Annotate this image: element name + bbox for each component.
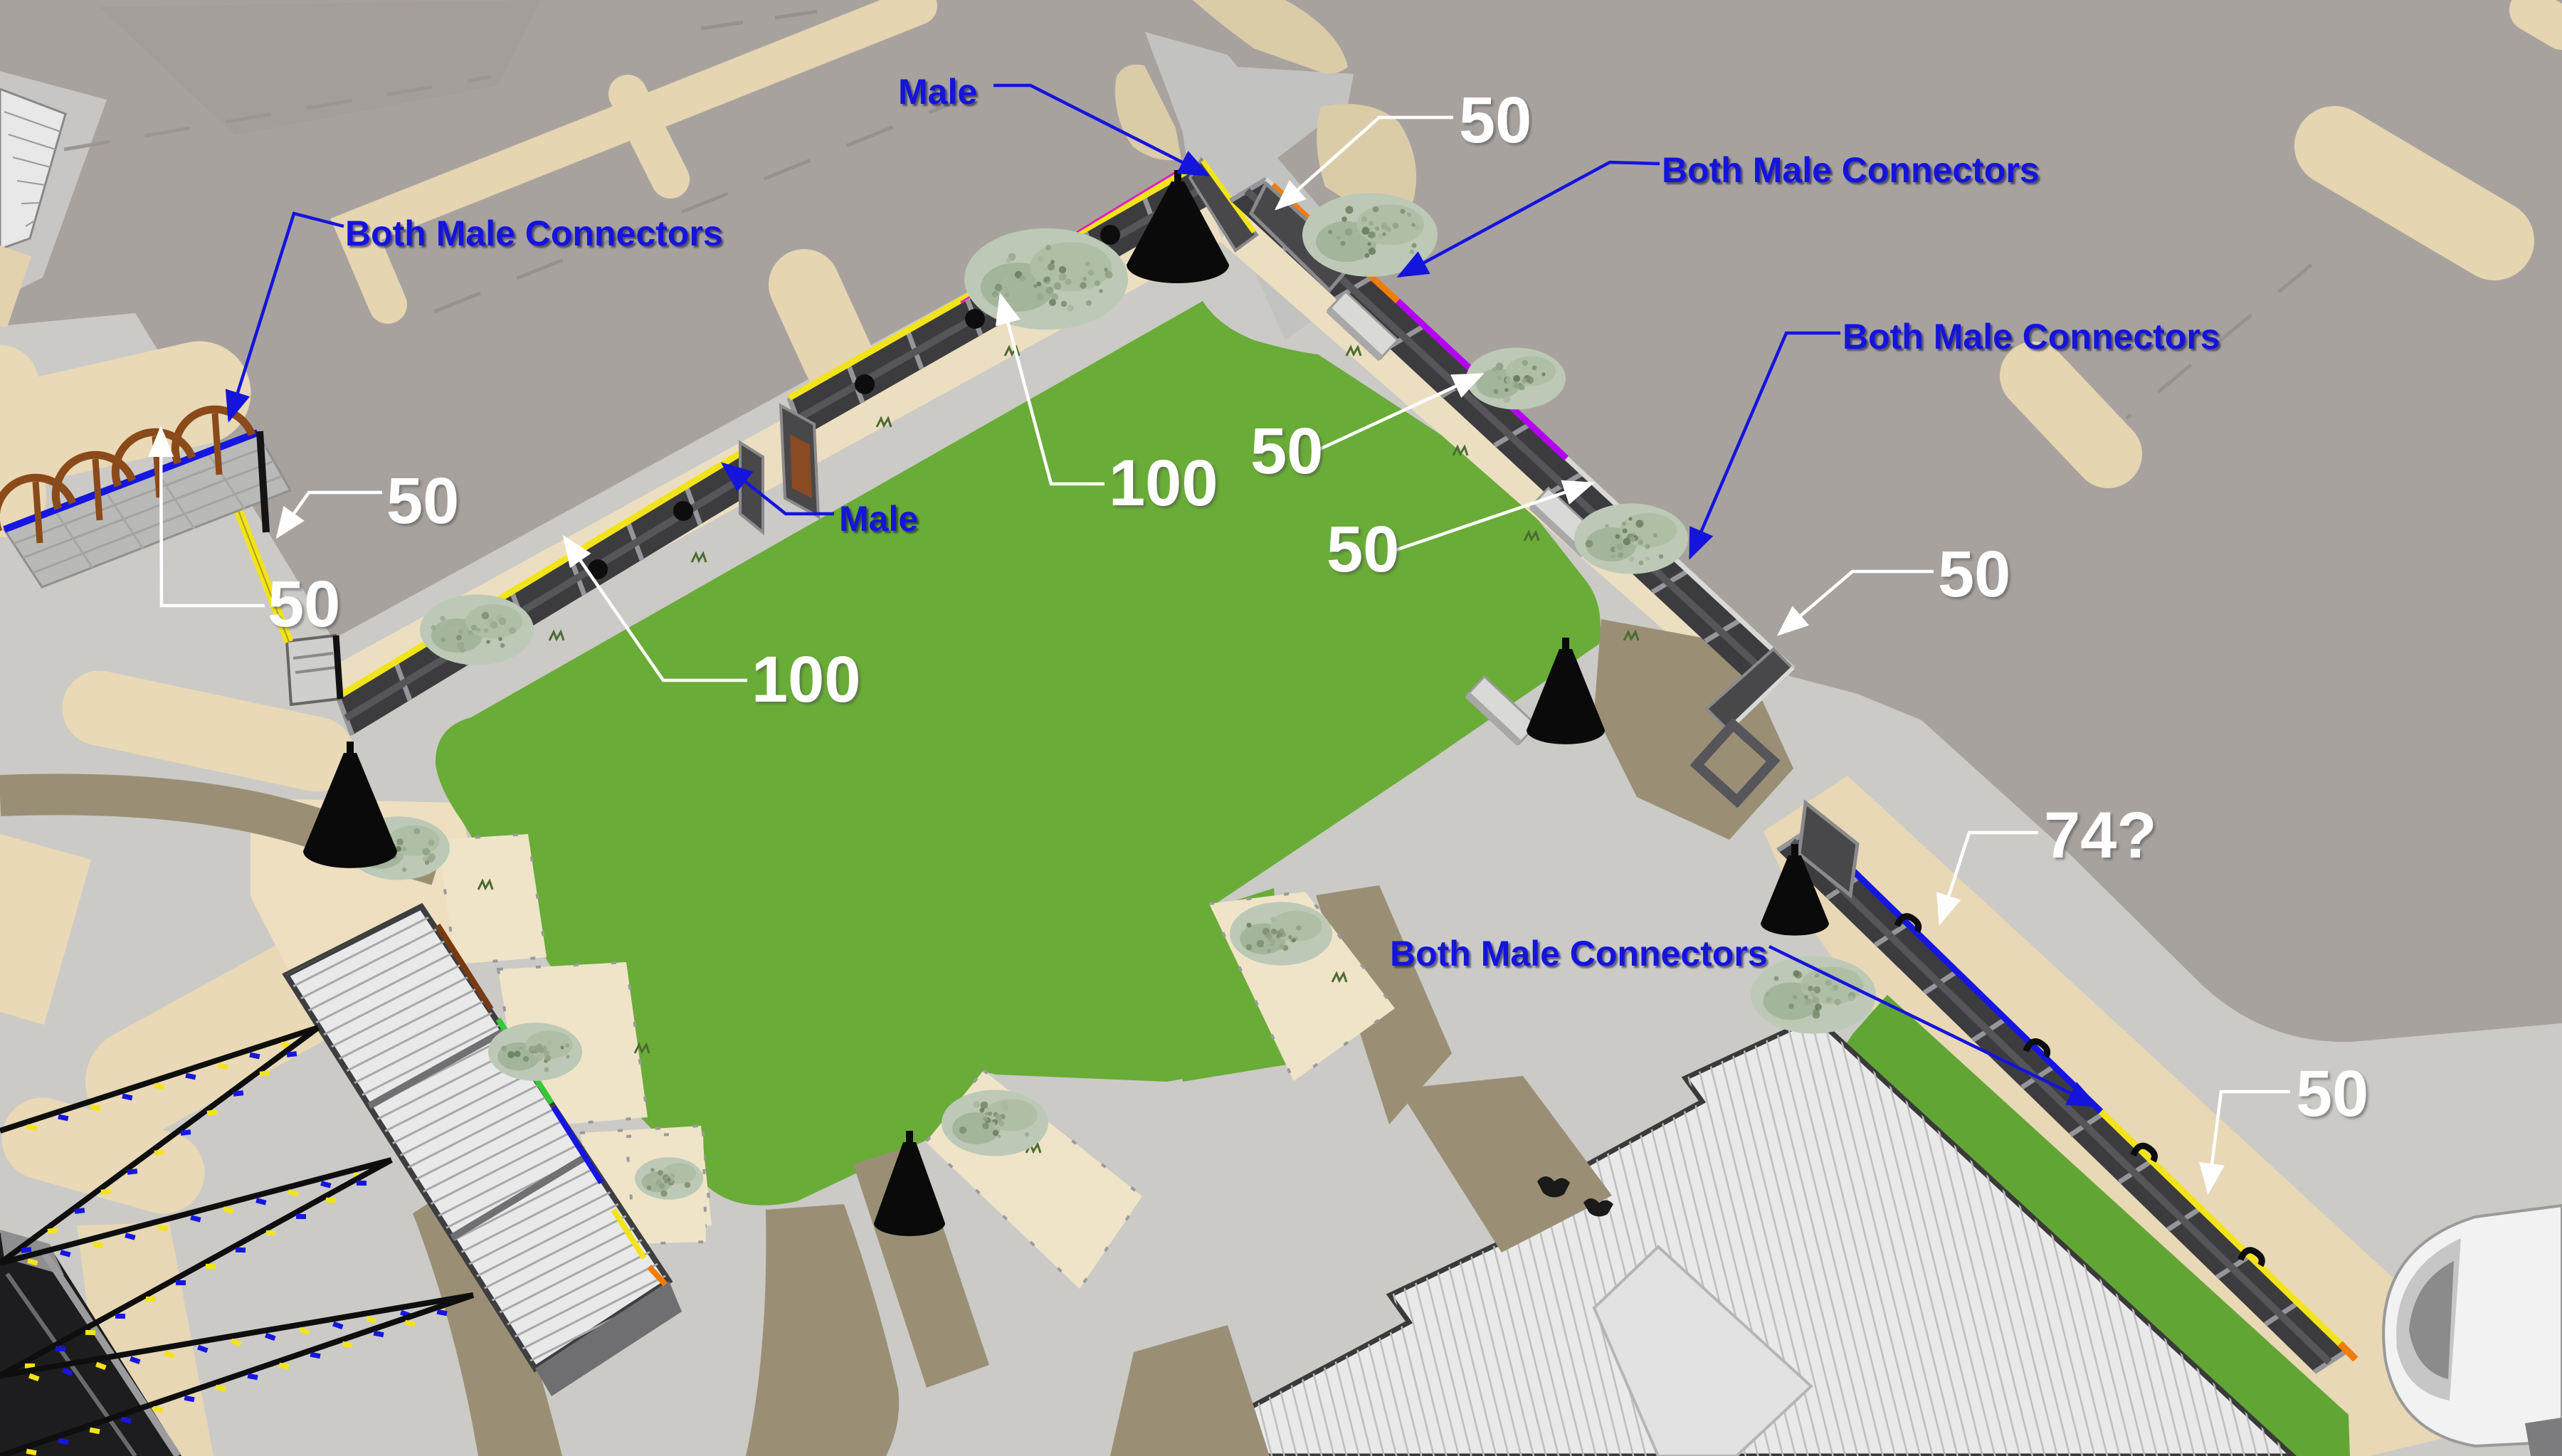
svg-text:50: 50 <box>386 465 459 537</box>
svg-text:Both Male Connectors: Both Male Connectors <box>1843 317 2220 357</box>
svg-text:100: 100 <box>752 643 861 716</box>
svg-text:50: 50 <box>1938 538 2010 611</box>
svg-text:74?: 74? <box>2044 799 2157 872</box>
svg-text:50: 50 <box>1250 415 1323 487</box>
svg-text:100: 100 <box>1109 447 1218 519</box>
svg-text:50: 50 <box>1459 84 1532 157</box>
svg-text:Male: Male <box>839 499 918 539</box>
svg-text:Both Male Connectors: Both Male Connectors <box>1390 934 1768 974</box>
svg-text:Both Male Connectors: Both Male Connectors <box>1662 150 2040 190</box>
svg-text:Male: Male <box>898 72 977 112</box>
svg-text:Both Male Connectors: Both Male Connectors <box>345 213 723 253</box>
svg-text:50: 50 <box>2296 1057 2368 1130</box>
svg-text:50: 50 <box>1327 513 1399 586</box>
svg-text:50: 50 <box>268 568 340 640</box>
